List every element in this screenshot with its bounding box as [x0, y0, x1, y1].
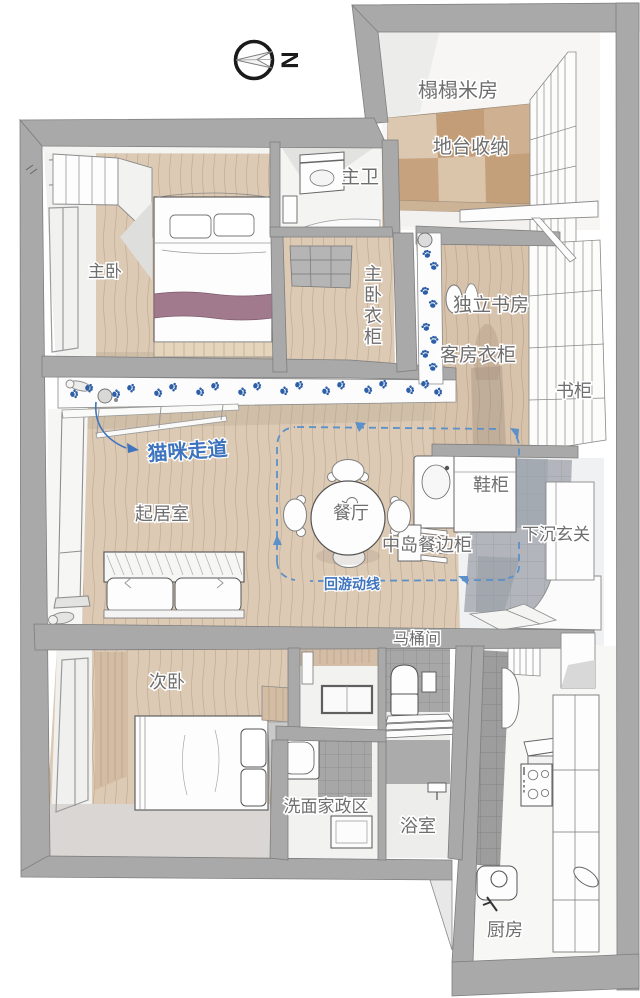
svg-text:厨房: 厨房: [487, 920, 523, 940]
svg-text:马桶间: 马桶间: [393, 630, 441, 648]
svg-text:回游动线: 回游动线: [324, 576, 380, 592]
svg-text:主卫: 主卫: [341, 166, 379, 188]
svg-text:次卧: 次卧: [149, 672, 185, 692]
svg-text:地台收纳: 地台收纳: [433, 136, 509, 158]
svg-text:餐厅: 餐厅: [333, 503, 369, 523]
svg-text:书柜: 书柜: [556, 381, 592, 401]
svg-text:浴室: 浴室: [400, 816, 436, 836]
svg-text:N: N: [276, 51, 303, 68]
svg-text:起居室: 起居室: [135, 504, 189, 524]
svg-text:客房衣柜: 客房衣柜: [440, 344, 516, 366]
svg-text:榻榻米房: 榻榻米房: [418, 79, 498, 102]
svg-text:洗面家政区: 洗面家政区: [284, 797, 369, 816]
svg-text:鞋柜: 鞋柜: [473, 475, 509, 495]
svg-text:主卧: 主卧: [88, 262, 122, 281]
svg-text:主卧衣柜: 主卧衣柜: [364, 264, 382, 347]
svg-text:中岛餐边柜: 中岛餐边柜: [382, 535, 472, 555]
svg-text:下沉玄关: 下沉玄关: [522, 525, 590, 544]
svg-text:独立书房: 独立书房: [453, 294, 529, 316]
